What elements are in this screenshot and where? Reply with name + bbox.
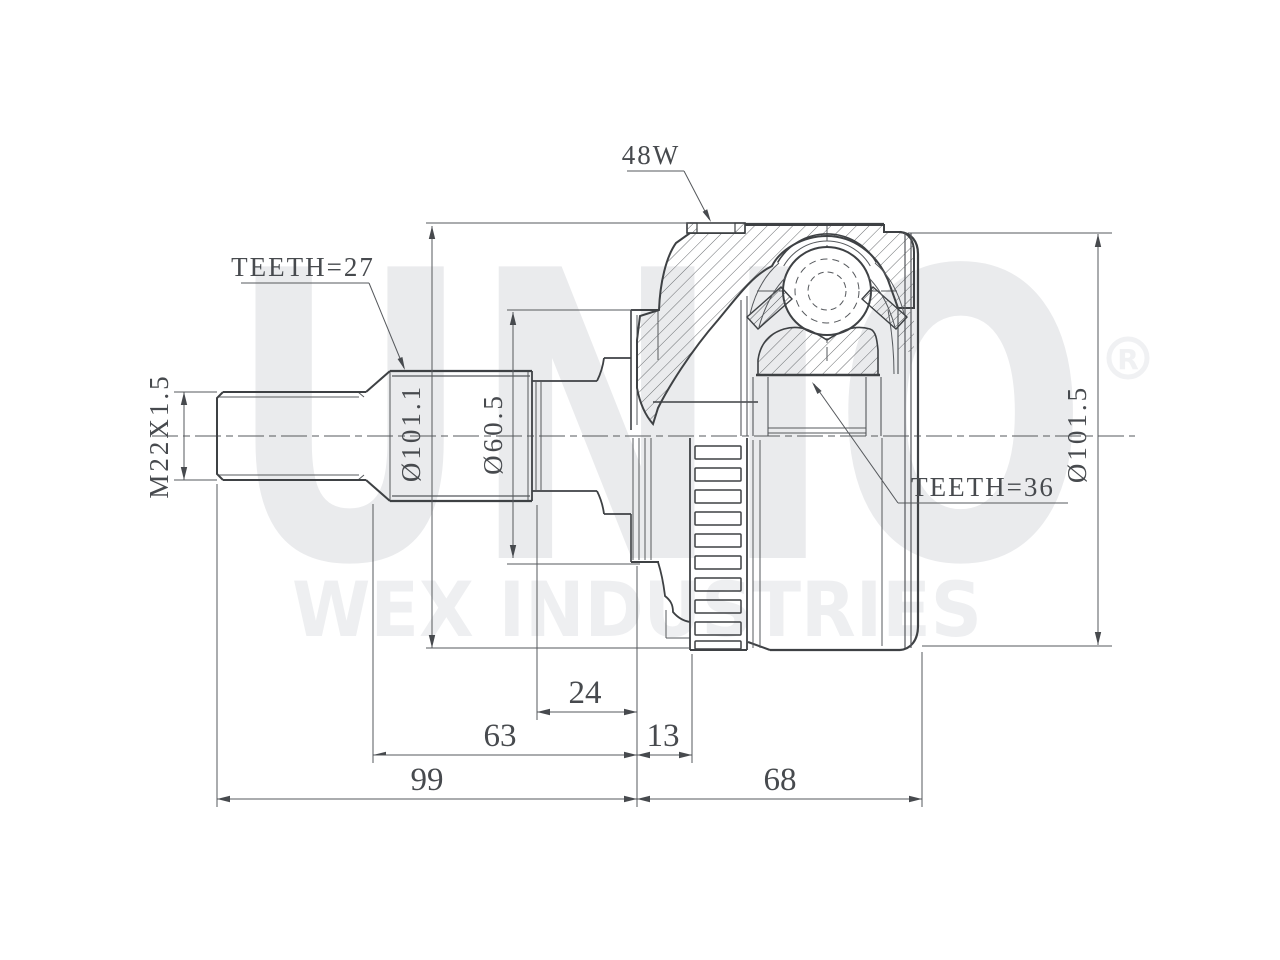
label-ring-teeth: TEETH=36: [911, 472, 1055, 502]
inner-race-section: [758, 327, 878, 375]
label-shoulder-diameter: Ø60.5: [478, 393, 508, 475]
dim-13: 13: [647, 718, 680, 754]
cv-joint-technical-drawing: UNIO WEX INDUSTRIES R: [0, 0, 1280, 960]
registered-mark-letter: R: [1117, 343, 1139, 376]
dim-68: 68: [764, 762, 797, 798]
label-thread-size: M22X1.5: [144, 373, 174, 498]
dimension-values: 24 63 13 99 68: [411, 675, 797, 798]
dim-24: 24: [569, 675, 602, 711]
dim-99: 99: [411, 762, 444, 798]
drawing-page: UNIO WEX INDUSTRIES R: [0, 0, 1280, 960]
label-abs-ring: 48W: [622, 140, 680, 170]
ball-bearing: [783, 247, 871, 335]
label-spline-teeth: TEETH=27: [231, 252, 375, 282]
label-housing-diameter: Ø101.1: [396, 384, 426, 482]
label-outer-diameter: Ø101.5: [1062, 385, 1092, 483]
abs-tone-ring: [687, 223, 745, 233]
dim-63: 63: [484, 718, 517, 754]
